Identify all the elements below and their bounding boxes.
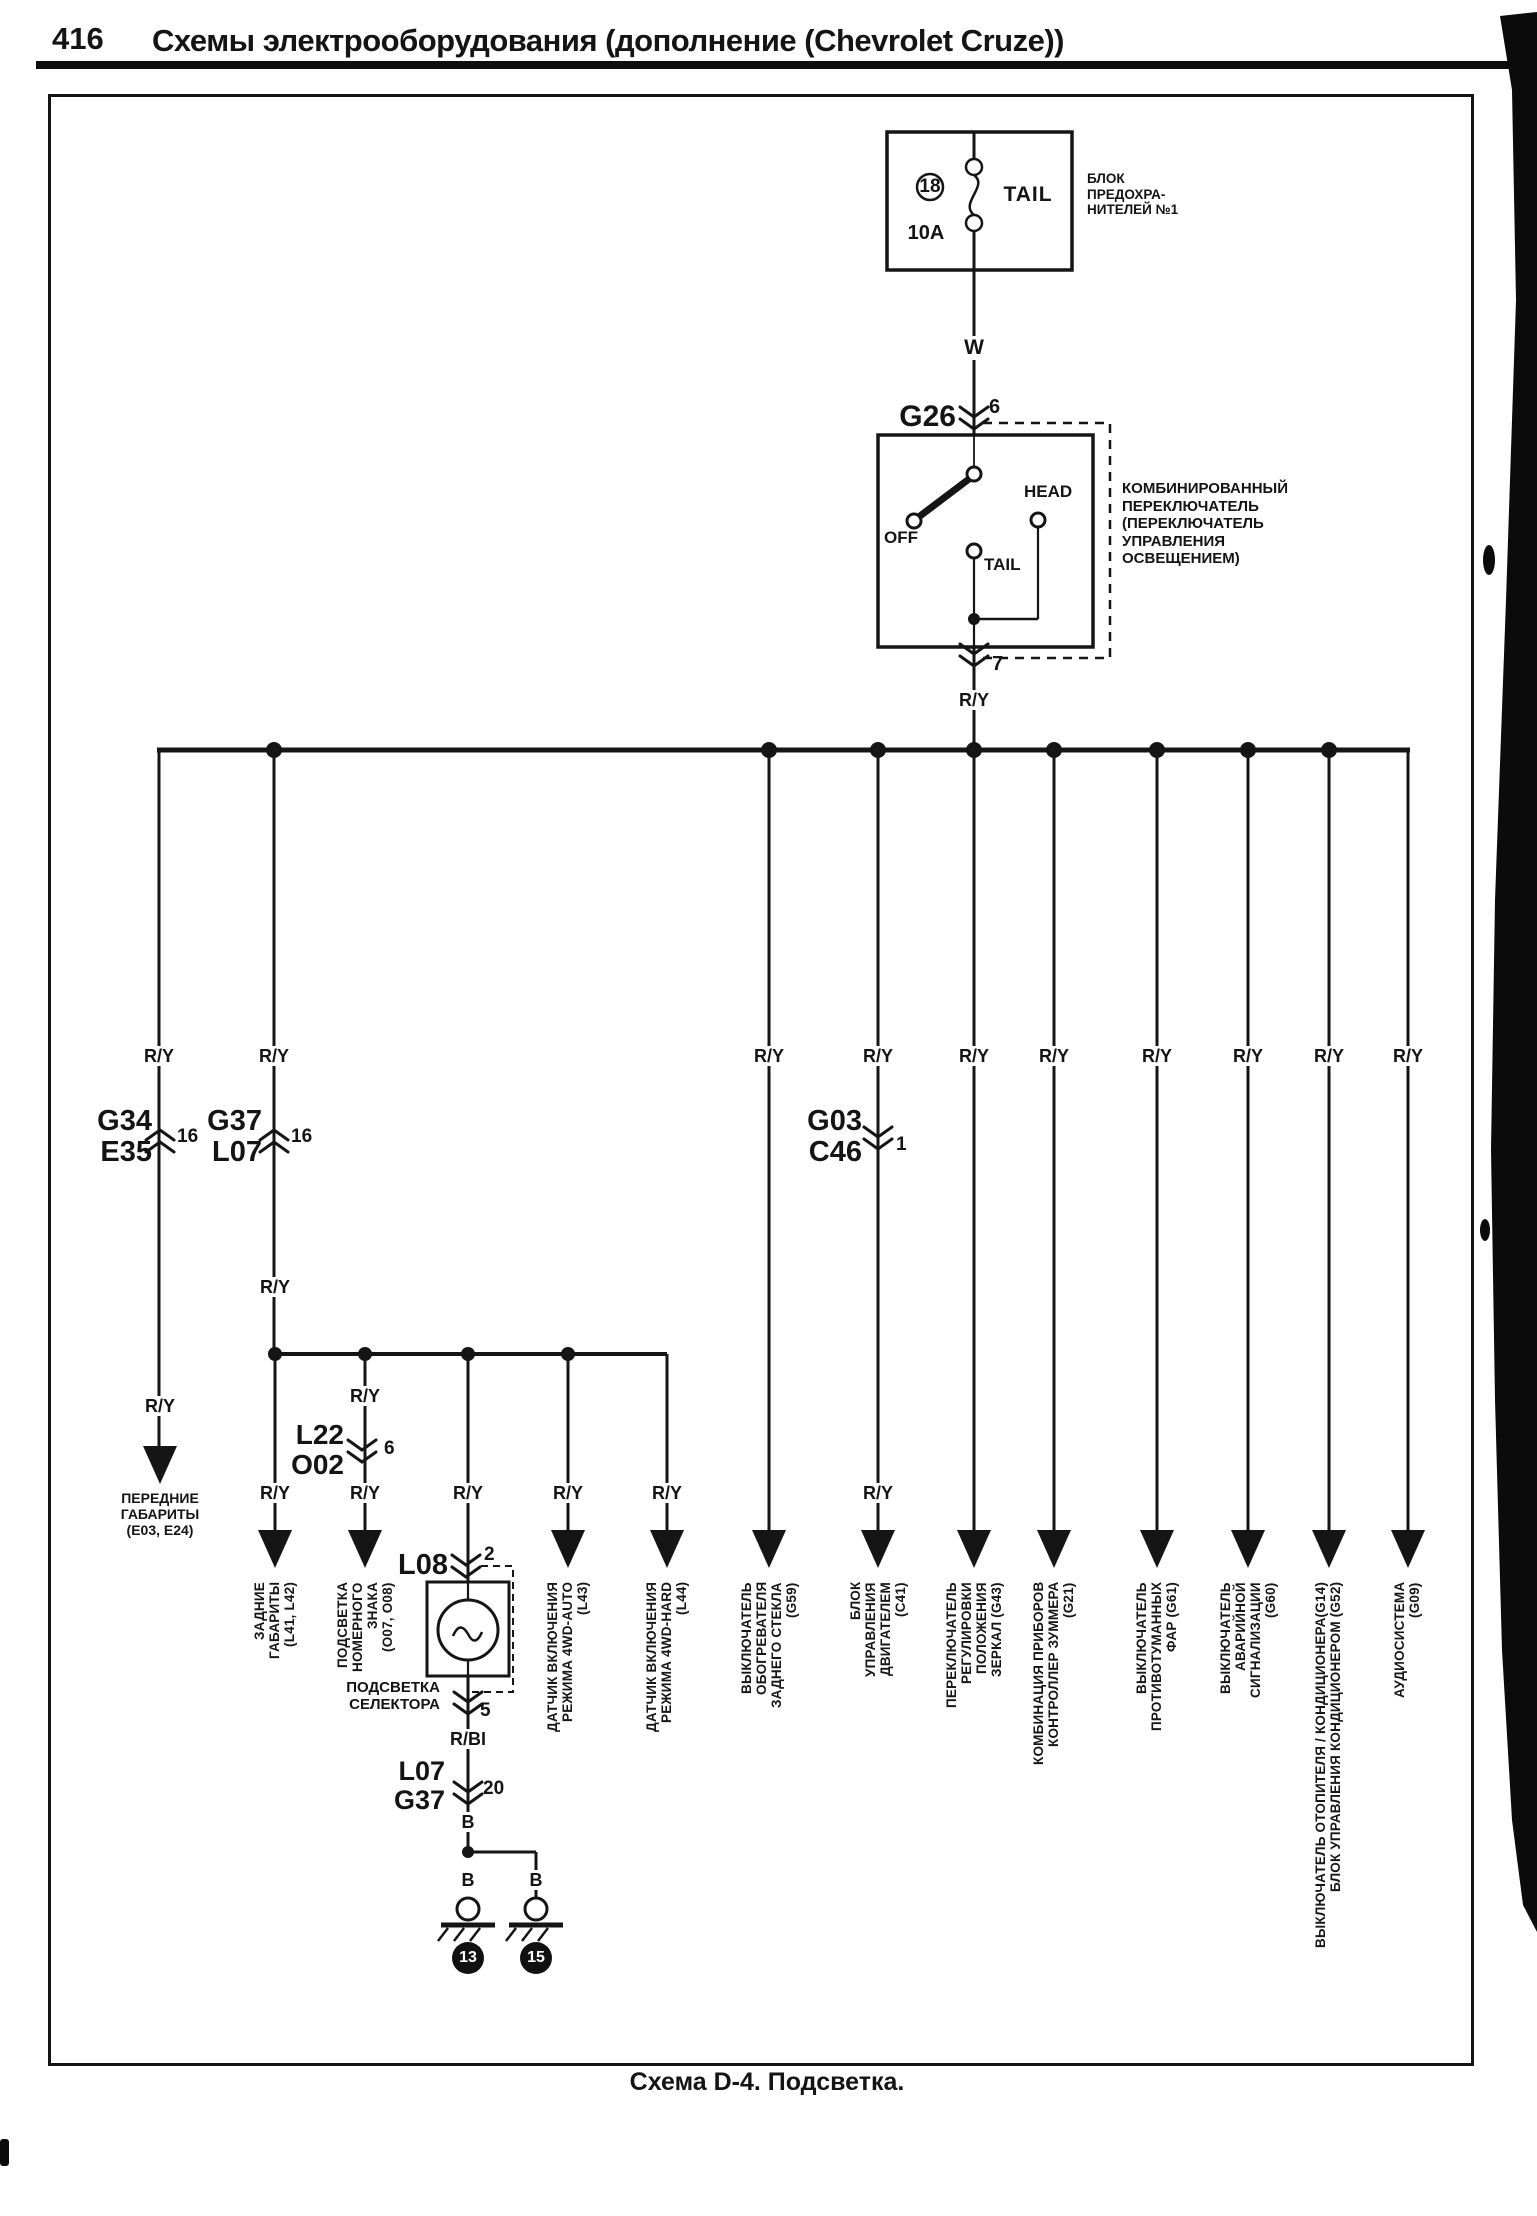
dest-defogger-switch: ВЫКЛЮЧАТЕЛЬ ОБОГРЕВАТЕЛЯ ЗАДНЕГО СТЕКЛА …: [739, 1582, 799, 2037]
ground-number-13: 13: [459, 1949, 477, 1967]
wire-label-rbi: R/BI: [446, 1729, 490, 1749]
wire-label-ry: R/Y: [1138, 1046, 1176, 1066]
wire-label-ry: R/Y: [549, 1483, 587, 1503]
dest-hvac-control: ВЫКЛЮЧАТЕЛЬ ОТОПИТЕЛЯ / КОНДИЦИОНЕРА(G14…: [1313, 1582, 1345, 2037]
switch-tail-contact: [967, 544, 981, 558]
switch-pos-head: HEAD: [1024, 482, 1072, 501]
wire-label-b: B: [526, 1870, 547, 1890]
ground-number-15: 15: [527, 1949, 545, 1967]
dest-foglight-switch: ВЫКЛЮЧАТЕЛЬ ПРОТИВОТУМАННЫХ ФАР (G61): [1134, 1582, 1180, 2037]
wire-label-ry: R/Y: [859, 1483, 897, 1503]
selector-out-pin: 5: [480, 1700, 491, 1721]
dest-4wd-auto-sensor: ДАТЧИК ВКЛЮЧЕНИЯ РЕЖИМА 4WD-AUTO (L43): [545, 1582, 591, 2037]
connector-g34-e35: G34 E35: [58, 1106, 152, 1168]
wire-label-ry: R/Y: [346, 1483, 384, 1503]
switch-off-contact: [907, 514, 921, 528]
connector-l08: L08: [352, 1549, 448, 1581]
bulb: [438, 1600, 498, 1660]
switch-pos-tail: TAIL: [984, 555, 1021, 574]
dest-front-lights: ПЕРЕДНИЕ ГАБАРИТЫ (Е03, Е24): [95, 1490, 225, 1538]
wire-label-ry: R/Y: [859, 1046, 897, 1066]
wire-label-ry: R/Y: [449, 1483, 487, 1503]
wire-label-ry: R/Y: [648, 1483, 686, 1503]
switch-common-contact: [967, 467, 981, 481]
fuse-block-label: БЛОК ПРЕДОХРА- НИТЕЛЕЙ №1: [1087, 171, 1178, 218]
switch-head-contact: [1031, 513, 1045, 527]
l07-g37-pin: 20: [483, 1778, 504, 1799]
dest-4wd-hard-sensor: ДАТЧИК ВКЛЮЧЕНИЯ РЕЖИМА 4WD-HARD (L44): [644, 1582, 690, 2037]
wire-label-ry: R/Y: [346, 1386, 384, 1406]
connector-l22-o02: L22 O02: [252, 1420, 344, 1480]
g26-pin-6: 6: [989, 396, 1000, 418]
fuse-rating: 10A: [895, 222, 957, 244]
wire-label-ry: R/Y: [1310, 1046, 1348, 1066]
wire-label-ry: R/Y: [750, 1046, 788, 1066]
l08-pin: 2: [484, 1544, 495, 1565]
wire-label-b: B: [458, 1812, 479, 1832]
switch-pos-off: OFF: [884, 528, 918, 547]
connector-g37-l07: G37 L07: [172, 1106, 262, 1168]
connector-g26: G26: [868, 400, 956, 434]
dest-instrument-cluster: КОМБИНАЦИЯ ПРИБОРОВ КОНТРОЛЛЕР ЗУММЕРА (…: [1031, 1582, 1077, 2037]
l22-o02-pin: 6: [384, 1438, 395, 1459]
g03-c46-pin: 1: [896, 1134, 907, 1155]
wire-label-ry: R/Y: [256, 1483, 294, 1503]
wire-label-ry: R/Y: [1389, 1046, 1427, 1066]
dest-mirror-switch: ПЕРЕКЛЮЧАТЕЛЬ РЕГУЛИРОВКИ ПОЛОЖЕНИЯ ЗЕРК…: [944, 1582, 1004, 2037]
wire-label-ry: R/Y: [141, 1396, 179, 1416]
dest-hazard-switch: ВЫКЛЮЧАТЕЛЬ АВАРИЙНОЙ СИГНАЛИЗАЦИИ (G60): [1218, 1582, 1278, 2037]
dest-plate-light: ПОДСВЕТКА НОМЕРНОГО ЗНАКА (O07, O08): [335, 1582, 395, 2037]
wire-label-b: B: [458, 1870, 479, 1890]
wire-label-ry: R/Y: [1035, 1046, 1073, 1066]
fuse-circuit-name: TAIL: [988, 183, 1068, 207]
diagram-caption: Схема D-4. Подсветка.: [480, 2068, 1054, 2096]
combo-switch-label: КОМБИНИРОВАННЫЙ ПЕРЕКЛЮЧАТЕЛЬ (ПЕРЕКЛЮЧА…: [1122, 480, 1288, 568]
wire-label-ry-feed: R/Y: [955, 690, 993, 710]
wire-label-ry: R/Y: [256, 1277, 294, 1297]
wire-label-ry: R/Y: [1229, 1046, 1267, 1066]
dest-audio-system: АУДИОСИСТЕМА (G09): [1392, 1582, 1424, 2037]
wire-label-w: W: [960, 336, 988, 360]
g37-l07-pin: 16: [291, 1126, 312, 1147]
dest-engine-ecu: БЛОК УПРАВЛЕНИЯ ДВИГАТЕЛЕМ (C41): [848, 1582, 908, 2037]
switch-pin-7: 7: [992, 653, 1003, 675]
fuse-terminal-top: [966, 159, 982, 175]
scanned-wiring-diagram-page: 416 Схемы электрооборудования (дополнени…: [0, 0, 1537, 2216]
dest-rear-lights: ЗАДНИЕ ГАБАРИТЫ (L41, L42): [252, 1582, 298, 2037]
fuse-number: 18: [910, 176, 950, 197]
wire-label-ry: R/Y: [955, 1046, 993, 1066]
wire-label-ry: R/Y: [140, 1046, 178, 1066]
connector-g03-c46: G03 C46: [770, 1106, 862, 1168]
fuse-terminal-bottom: [966, 215, 982, 231]
wire-label-ry: R/Y: [255, 1046, 293, 1066]
